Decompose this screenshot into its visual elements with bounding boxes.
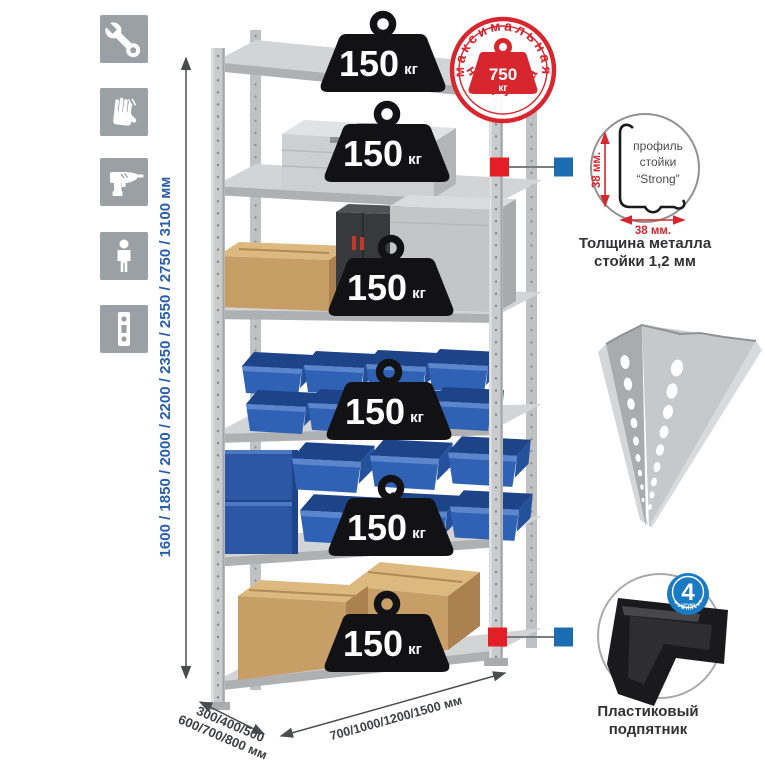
marker-blue-bottom <box>554 628 573 647</box>
foot-caption-2: подпятник <box>609 721 688 738</box>
weight-shelf-1: 150кг <box>321 15 446 93</box>
height-dimension: 1600 / 1850 / 2000 / 2200 / 2350 / 2550 … <box>157 58 186 678</box>
gloves-icon <box>100 88 148 136</box>
stamp-value: 750 <box>489 65 517 84</box>
weight-unit: кг <box>404 61 418 78</box>
wrench-icon <box>99 15 148 63</box>
corner-post-image <box>598 325 762 527</box>
width-dimension-line <box>281 673 505 736</box>
perforated-strip-icon <box>100 305 148 353</box>
profile-label-2: стойки <box>640 155 677 169</box>
stamp-unit: кг <box>498 83 507 94</box>
width-label: 700/1000/1200/1500 мм <box>328 693 463 743</box>
marker-red-bottom <box>488 628 507 647</box>
weight-shelf-2: 150кг <box>325 105 450 183</box>
height-dimension-label: 1600 / 1850 / 2000 / 2200 / 2350 / 2550 … <box>157 177 174 558</box>
sidebar-icons <box>99 15 148 353</box>
foot-caption-1: Пластиковый <box>597 703 698 720</box>
cardboard-box-mid <box>217 242 351 311</box>
max-load-stamp: максимальная нагрузка 750 кг <box>451 17 555 121</box>
profile-label-1: профиль <box>633 139 683 153</box>
weight-value: 150 <box>339 43 399 84</box>
scene: 1600 / 1850 / 2000 / 2200 / 2350 / 2550 … <box>0 0 765 765</box>
drill-icon <box>100 158 148 206</box>
profile-caption-1: Толщина металла <box>579 235 712 252</box>
profile-dim-vertical: 38 мм. <box>591 152 603 188</box>
product-infographic: 1600 / 1850 / 2000 / 2200 / 2350 / 2550 … <box>0 0 765 765</box>
width-dimension: 700/1000/1200/1500 мм <box>281 673 505 743</box>
marker-red-top <box>490 158 509 177</box>
person-icon <box>100 232 148 280</box>
blue-stacked-containers <box>222 450 298 554</box>
profile-feature: 38 мм. 38 мм. профиль стойки “Strong” То… <box>579 114 712 270</box>
marker-blue-top <box>554 158 573 177</box>
profile-caption-2: стойки 1,2 мм <box>594 253 696 270</box>
front-left-post <box>206 48 230 710</box>
profile-label-3: “Strong” <box>636 172 679 186</box>
